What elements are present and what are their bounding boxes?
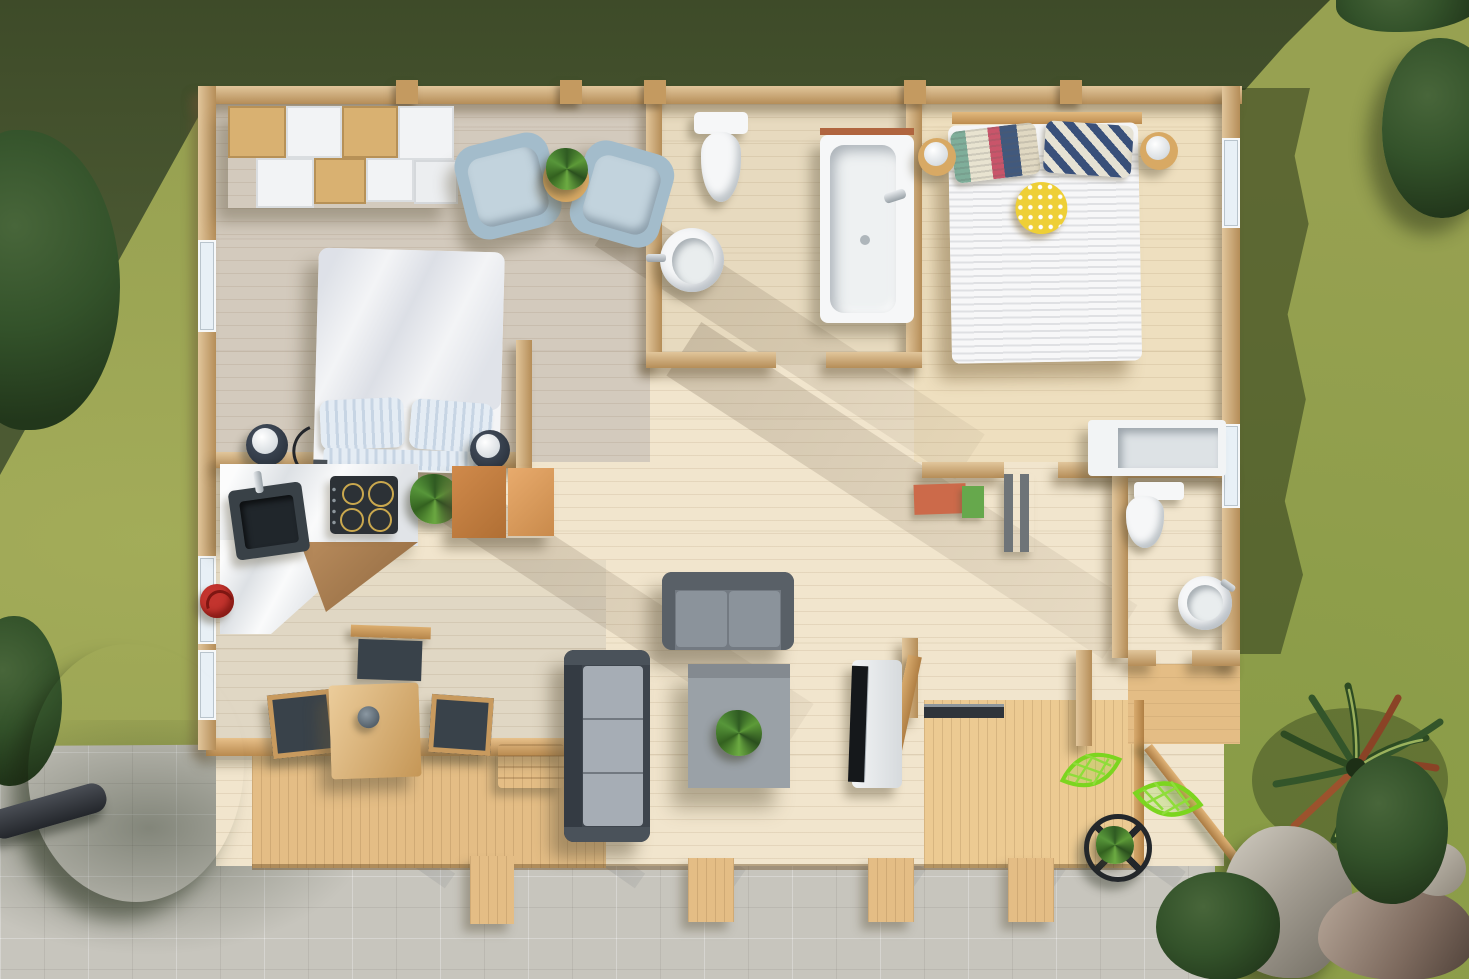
burner bbox=[368, 481, 394, 507]
dining-chair-top bbox=[349, 625, 431, 684]
bedside-lamp bbox=[476, 434, 500, 458]
wardrobe-cube bbox=[314, 158, 366, 204]
bathroom2-cabinet bbox=[1088, 420, 1226, 476]
step-ramp bbox=[470, 856, 514, 924]
wardrobe-cube bbox=[256, 158, 314, 208]
wooden-dining-table bbox=[328, 682, 421, 779]
potted-plant bbox=[546, 148, 588, 190]
toilet bbox=[694, 112, 748, 204]
four-ring-cooktop bbox=[330, 476, 398, 534]
sliding-door-threshold bbox=[924, 704, 1004, 718]
scene bbox=[0, 0, 1469, 979]
sofa-back bbox=[564, 650, 582, 842]
brown-cabinet bbox=[452, 466, 554, 538]
wall-post bbox=[904, 80, 926, 104]
cooktop-knobs bbox=[332, 484, 336, 528]
toilet bbox=[1126, 482, 1184, 550]
table-bowl bbox=[357, 706, 380, 729]
wardrobe-cube bbox=[366, 158, 414, 202]
bed2-pillow-patch bbox=[950, 122, 1042, 184]
bedside-lamp bbox=[924, 142, 948, 166]
armchair-cushion bbox=[579, 152, 664, 238]
wardrobe-cube bbox=[286, 106, 342, 158]
side-deck bbox=[1128, 664, 1240, 744]
wire-table-plant bbox=[1096, 826, 1134, 864]
toilet-bowl bbox=[701, 132, 741, 202]
sofa-cushions bbox=[583, 666, 643, 826]
bush-right-of-palm bbox=[1336, 756, 1448, 904]
cube-wardrobe bbox=[228, 106, 454, 208]
green-mat bbox=[962, 486, 984, 518]
step-ramp bbox=[1008, 858, 1054, 922]
dining-chair-left bbox=[267, 689, 337, 759]
basin-bowl bbox=[672, 238, 714, 284]
step-ramp bbox=[688, 858, 734, 922]
wall-post bbox=[644, 80, 666, 104]
cabinet-left bbox=[452, 466, 506, 538]
bedside-lamp bbox=[1146, 136, 1170, 160]
cabinet-well bbox=[1118, 428, 1218, 468]
coffee-table-lip bbox=[688, 664, 790, 678]
window bbox=[1222, 138, 1240, 228]
basin-faucet bbox=[646, 254, 666, 262]
sink-basin bbox=[239, 494, 299, 549]
dining-chair-right bbox=[428, 694, 494, 756]
wardrobe-cube bbox=[398, 106, 454, 160]
wardrobe-cube bbox=[228, 106, 286, 158]
gray-shelf bbox=[1004, 474, 1034, 552]
toilet-tank bbox=[694, 112, 748, 134]
sofa-arm bbox=[564, 827, 650, 842]
toilet-bowl bbox=[1126, 496, 1164, 548]
sofa-seat bbox=[676, 591, 727, 647]
sofa-back bbox=[662, 572, 794, 590]
red-kettle bbox=[200, 584, 234, 618]
deck-bench bbox=[498, 744, 564, 788]
wall-bath1-south-a bbox=[646, 352, 776, 368]
step-ramp bbox=[868, 858, 914, 922]
window bbox=[198, 240, 216, 332]
wall-bed2-south-a bbox=[922, 462, 1004, 478]
wall-entry-corridor bbox=[1076, 650, 1092, 746]
bed2-pillow-check bbox=[1043, 120, 1134, 178]
wardrobe-cube bbox=[342, 106, 398, 158]
two-seat-sofa bbox=[662, 572, 794, 650]
round-washbasin bbox=[660, 228, 724, 292]
wall-bath2-south-b bbox=[1192, 650, 1240, 666]
armchair-cushion bbox=[465, 144, 552, 229]
burner bbox=[340, 508, 364, 532]
three-seat-sofa bbox=[564, 650, 650, 842]
bedside-lamp bbox=[252, 428, 278, 454]
double-bed-bedroom2 bbox=[948, 122, 1142, 363]
wall-post bbox=[396, 80, 418, 104]
wall-post bbox=[1060, 80, 1082, 104]
corner-sink bbox=[227, 481, 310, 561]
sofa-arm bbox=[564, 650, 650, 665]
sofa-seat bbox=[729, 591, 780, 647]
wall-bed1-stub bbox=[516, 340, 532, 468]
basin-bowl bbox=[1187, 585, 1223, 621]
bed1-duvet bbox=[315, 248, 505, 411]
bathtub-well bbox=[830, 145, 896, 313]
burner bbox=[342, 483, 364, 505]
bush-bottom-right bbox=[1156, 872, 1280, 979]
sofa-arm bbox=[662, 572, 675, 650]
cabinet-right bbox=[508, 468, 554, 536]
wall-post bbox=[560, 80, 582, 104]
sofa-arm bbox=[781, 572, 794, 650]
bathtub-trim bbox=[820, 128, 914, 135]
wardrobe-cube bbox=[414, 160, 458, 204]
square-coffee-table bbox=[688, 664, 790, 788]
bathtub bbox=[820, 135, 914, 323]
chair-seat bbox=[357, 639, 422, 681]
chair-backrest bbox=[351, 625, 431, 640]
wall-bath2-south-a bbox=[1128, 650, 1156, 666]
red-mat bbox=[913, 483, 966, 515]
round-washbasin bbox=[1178, 576, 1232, 630]
bathtub-drain bbox=[860, 235, 870, 245]
coffee-table-plant bbox=[716, 710, 762, 756]
wall-north bbox=[198, 86, 1242, 104]
wall-bath1-south-b bbox=[826, 352, 922, 368]
burner bbox=[368, 508, 392, 532]
